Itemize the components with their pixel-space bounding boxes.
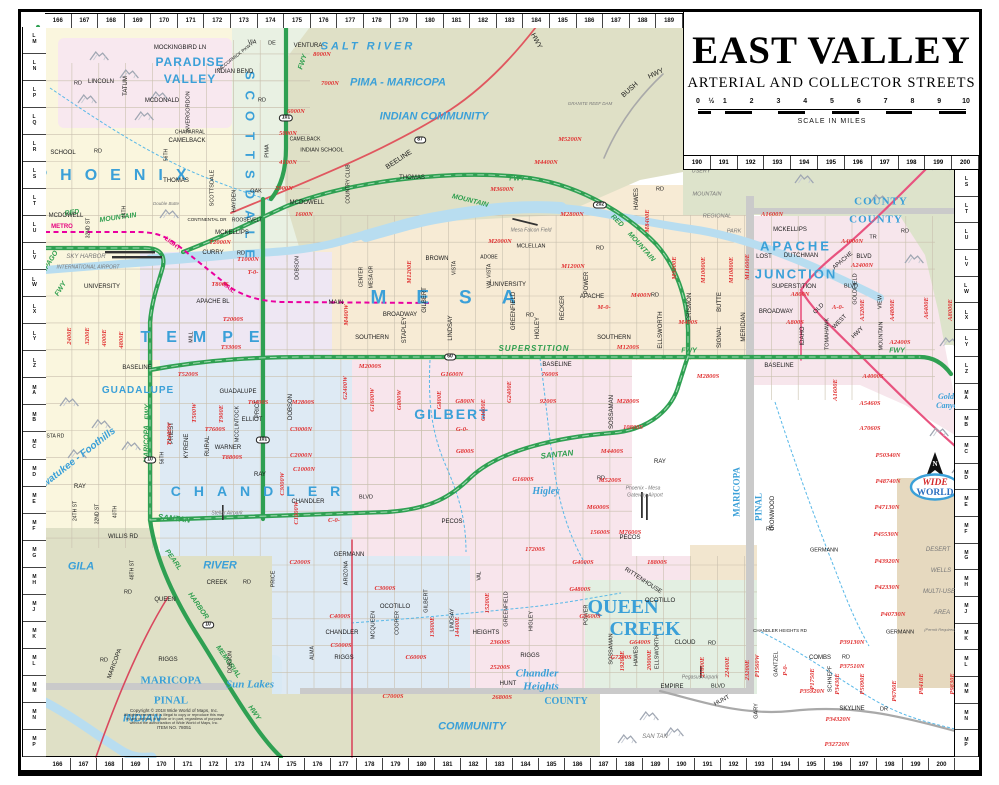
grid-ref-cell: 176: [305, 758, 331, 772]
grid-ref-cell: M P: [955, 730, 978, 757]
grid-ref-cell: L R: [23, 135, 46, 162]
grid-ref-cell: 180: [417, 14, 444, 28]
copyright-line: ITEM NO. 78051: [118, 725, 230, 730]
grid-ref-cell: 173: [227, 758, 253, 772]
grid-ref-cell: L Z: [23, 351, 46, 378]
grid-ref-cell: L P: [23, 81, 46, 108]
grid-ref-cell: M P: [23, 730, 46, 757]
grid-ref-cell: M G: [955, 544, 978, 571]
grid-ref-cell: M B: [955, 410, 978, 437]
scale-tick: 4: [803, 98, 807, 105]
grid-ref-cell: 169: [123, 758, 149, 772]
grid-ref-cell: 176: [311, 14, 338, 28]
grid-ref-cell: 188: [617, 758, 643, 772]
grid-ref-cell: 182: [470, 14, 497, 28]
grid-ref-cell: 195: [799, 758, 825, 772]
grid-ref-cell: L Q: [23, 108, 46, 135]
grid-ref-cell: 175: [279, 758, 305, 772]
grid-ref-cell: 196: [825, 758, 851, 772]
grid-ref-cell: 185: [550, 14, 577, 28]
grid-ref-cell: M H: [23, 568, 46, 595]
grid-band-title-row: 190191192193194195196197198199200: [684, 155, 979, 169]
grid-ref-cell: 193: [764, 156, 791, 169]
grid-ref-cell: M G: [23, 541, 46, 568]
grid-ref-cell: M E: [955, 490, 978, 517]
map-title: EAST VALLEY: [684, 28, 979, 73]
scale-tick: 7: [884, 98, 888, 105]
grid-ref-cell: 191: [711, 156, 738, 169]
grid-ref-cell: M J: [955, 597, 978, 624]
scale-tick-numbers: 0½12345678910: [698, 98, 966, 108]
grid-ref-cell: L W: [955, 277, 978, 304]
copyright-block: Copyright © 2018 Wide World of Maps, Inc…: [118, 708, 230, 730]
grid-ref-cell: 170: [151, 14, 178, 28]
grid-ref-cell: 186: [577, 14, 604, 28]
grid-ref-cell: M A: [955, 384, 978, 411]
grid-ref-cell: M F: [23, 514, 46, 541]
grid-ref-cell: M M: [23, 676, 46, 703]
grid-ref-cell: 166: [45, 14, 72, 28]
scale-tick: 1: [723, 98, 727, 105]
scale-tick: 10: [962, 98, 970, 105]
grid-ref-cell: 189: [643, 758, 669, 772]
scale-caption: SCALE IN MILES: [698, 118, 966, 125]
grid-ref-cell: L T: [23, 189, 46, 216]
grid-ref-cell: L Y: [23, 324, 46, 351]
grid-ref-cell: M H: [955, 570, 978, 597]
grid-ref-cell: 174: [253, 758, 279, 772]
grid-ref-cell: L X: [955, 303, 978, 330]
grid-ref-cell: 195: [818, 156, 845, 169]
grid-ref-cell: L T: [955, 197, 978, 224]
grid-ref-cell: M M: [955, 677, 978, 704]
grid-ref-cell: 197: [872, 156, 899, 169]
grid-ref-cell: 177: [337, 14, 364, 28]
grid-ref-cell: L X: [23, 297, 46, 324]
grid-ref-cell: L Z: [955, 357, 978, 384]
grid-ref-cell: 182: [461, 758, 487, 772]
grid-ref-cell: L V: [23, 243, 46, 270]
grid-ref-cell: L U: [955, 223, 978, 250]
grid-ref-cell: 170: [149, 758, 175, 772]
grid-ref-cell: L S: [23, 162, 46, 189]
grid-ref-cell: M C: [955, 437, 978, 464]
grid-ref-cell: 181: [444, 14, 471, 28]
grid-ref-cell: 200: [952, 156, 979, 169]
grid-ref-cell: 174: [258, 14, 285, 28]
grid-ref-cell: 200: [929, 758, 955, 772]
grid-ref-cell: 183: [487, 758, 513, 772]
grid-ref-cell: 171: [175, 758, 201, 772]
scale-tick: 2: [750, 98, 754, 105]
logo-word-world: WORLD: [917, 488, 954, 498]
grid-ref-cell: M A: [23, 378, 46, 405]
scale-tick: 6: [857, 98, 861, 105]
grid-ref-cell: 172: [204, 14, 231, 28]
scale-tick: 5: [830, 98, 834, 105]
grid-ref-cell: 194: [791, 156, 818, 169]
grid-ref-cell: 168: [97, 758, 123, 772]
grid-ref-cell: L U: [23, 216, 46, 243]
grid-ref-cell: M K: [23, 622, 46, 649]
grid-ref-cell: M D: [955, 464, 978, 491]
grid-ref-cell: 191: [695, 758, 721, 772]
grid-ref-cell: 178: [364, 14, 391, 28]
grid-ref-cell: 166: [45, 758, 71, 772]
grid-ref-cell: M N: [23, 703, 46, 730]
grid-ref-cell: 189: [656, 14, 683, 28]
scale-bar-segments: [698, 109, 966, 115]
scale-tick: 0: [696, 98, 700, 105]
grid-ref-cell: M L: [23, 649, 46, 676]
grid-ref-cell: 199: [925, 156, 952, 169]
grid-ref-cell: 171: [178, 14, 205, 28]
grid-ref-cell: 194: [773, 758, 799, 772]
grid-ref-cell: 180: [409, 758, 435, 772]
grid-ref-cell: 181: [435, 758, 461, 772]
grid-ref-cell: M C: [23, 432, 46, 459]
grid-ref-cell: M J: [23, 595, 46, 622]
scale-tick: 8: [910, 98, 914, 105]
grid-ref-cell: 187: [591, 758, 617, 772]
grid-ref-cell: 198: [877, 758, 903, 772]
grid-ref-cell: 169: [125, 14, 152, 28]
grid-ref-cell: 196: [845, 156, 872, 169]
grid-ref-cell: M F: [955, 517, 978, 544]
grid-ref-cell: 190: [669, 758, 695, 772]
grid-ref-cell: 178: [357, 758, 383, 772]
grid-ref-cell: L W: [23, 270, 46, 297]
grid-band-top: 1661671681691701711721731741751761771781…: [45, 13, 683, 28]
grid-ref-cell: L M: [23, 27, 46, 54]
grid-ref-cell: 192: [738, 156, 765, 169]
grid-ref-cell: M K: [955, 624, 978, 651]
grid-ref-cell: 193: [747, 758, 773, 772]
grid-ref-cell: 185: [539, 758, 565, 772]
grid-band-right: L SL TL UL VL WL XL YL ZM AM BM CM DM EM…: [955, 170, 979, 757]
grid-ref-cell: L S: [955, 170, 978, 197]
grid-ref-cell: 177: [331, 758, 357, 772]
logo-word-wide: WIDE: [922, 478, 947, 488]
grid-ref-cell: 173: [231, 14, 258, 28]
grid-ref-cell: 197: [851, 758, 877, 772]
grid-ref-cell: 167: [71, 758, 97, 772]
grid-ref-cell: M E: [23, 487, 46, 514]
title-block: EAST VALLEY ARTERIAL AND COLLECTOR STREE…: [683, 12, 979, 170]
grid-ref-cell: 190: [684, 156, 711, 169]
grid-ref-cell: M L: [955, 650, 978, 677]
north-arrow-letter: N: [932, 460, 937, 468]
grid-ref-cell: 172: [201, 758, 227, 772]
grid-ref-cell: L V: [955, 250, 978, 277]
grid-ref-cell: 175: [284, 14, 311, 28]
grid-ref-cell: M B: [23, 405, 46, 432]
grid-ref-cell: M D: [23, 460, 46, 487]
grid-ref-cell: 168: [98, 14, 125, 28]
grid-ref-cell: 187: [603, 14, 630, 28]
grid-ref-cell: 192: [721, 758, 747, 772]
grid-ref-cell: 179: [391, 14, 418, 28]
grid-ref-cell: 167: [72, 14, 99, 28]
grid-ref-cell: 179: [383, 758, 409, 772]
map-page: N WIDE WORLD PHOENIXSCOTTSDALEMESATEMPEC…: [0, 0, 999, 785]
grid-ref-cell: 183: [497, 14, 524, 28]
grid-ref-cell: L Y: [955, 330, 978, 357]
grid-ref-cell: 186: [565, 758, 591, 772]
scale-bar: 0½12345678910 SCALE IN MILES: [698, 98, 966, 134]
grid-ref-cell: 198: [899, 156, 926, 169]
grid-ref-cell: 184: [523, 14, 550, 28]
map-subtitle: ARTERIAL AND COLLECTOR STREETS: [684, 75, 979, 92]
grid-ref-cell: 184: [513, 758, 539, 772]
grid-ref-cell: M N: [955, 704, 978, 731]
grid-band-left: L ML NL PL QL RL SL TL UL VL WL XL YL ZM…: [22, 27, 46, 757]
grid-ref-cell: 199: [903, 758, 929, 772]
grid-ref-cell: L N: [23, 54, 46, 81]
scale-tick: 9: [937, 98, 941, 105]
scale-tick: ½: [708, 98, 714, 105]
scale-tick: 3: [776, 98, 780, 105]
grid-ref-cell: 188: [630, 14, 657, 28]
grid-band-bottom: 1661671681691701711721731741751761771781…: [45, 758, 955, 773]
